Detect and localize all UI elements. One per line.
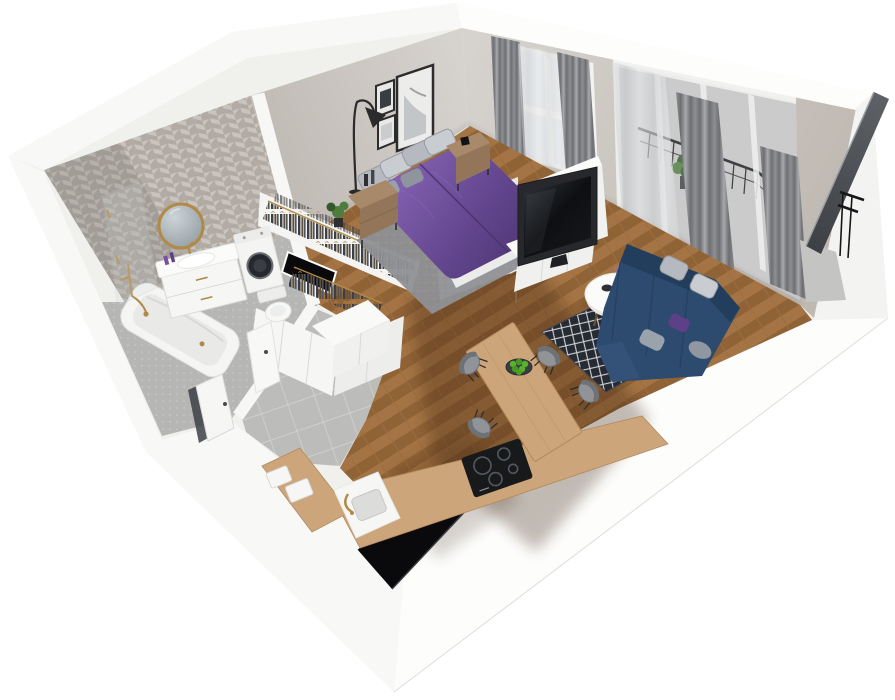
apple-bowl	[506, 359, 532, 375]
alarm-clock[interactable]	[460, 136, 469, 145]
floorplan-stage	[0, 0, 895, 700]
round-mirror[interactable]	[159, 204, 203, 248]
floorplan-render	[0, 0, 895, 700]
